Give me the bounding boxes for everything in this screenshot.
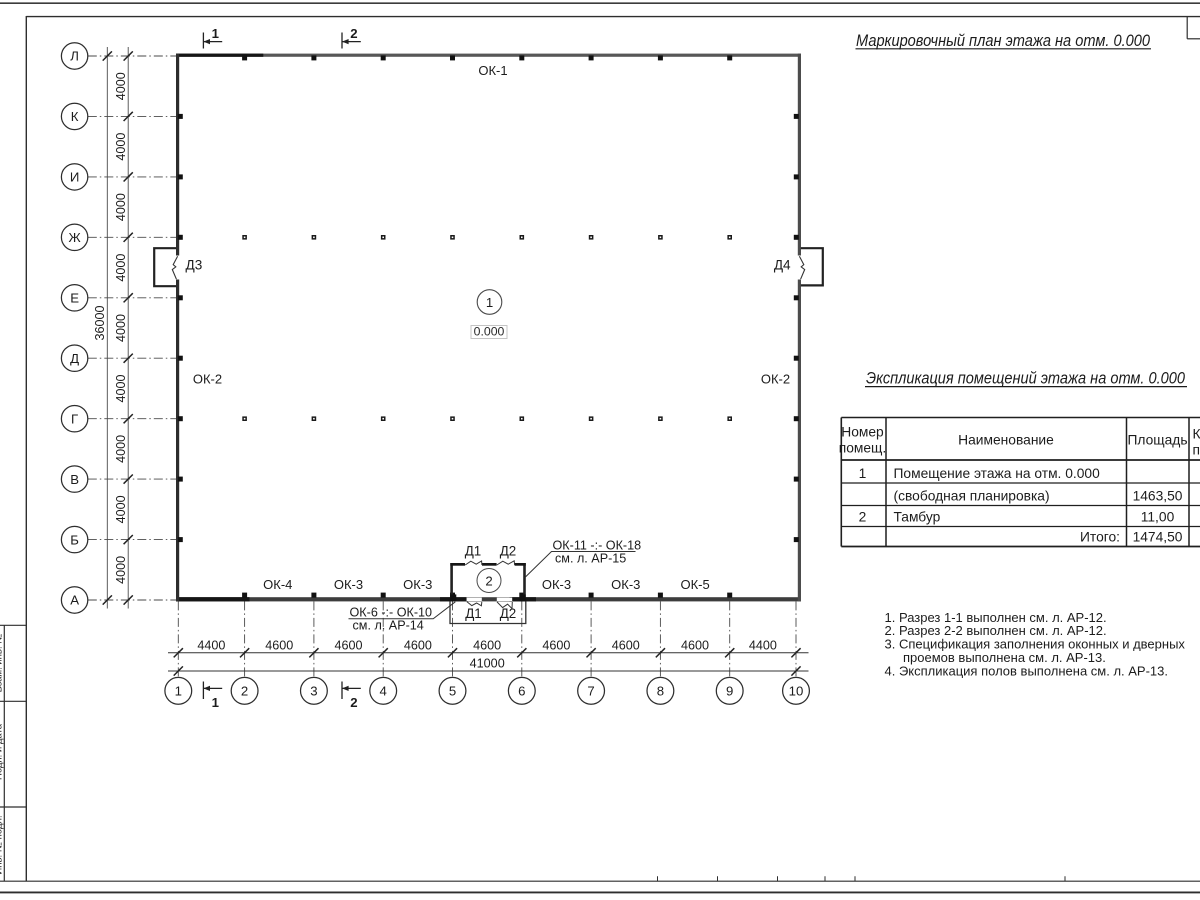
svg-text:2: 2 — [350, 695, 357, 710]
svg-text:по: по — [1193, 443, 1200, 458]
svg-text:Д1: Д1 — [465, 606, 482, 621]
svg-text:(свободная планировка): (свободная планировка) — [894, 489, 1050, 504]
svg-text:1463,50: 1463,50 — [1133, 489, 1183, 504]
svg-text:Е: Е — [70, 291, 79, 306]
svg-text:10: 10 — [789, 684, 804, 699]
svg-text:1474,50: 1474,50 — [1133, 530, 1183, 545]
svg-text:ОК-6 -:- ОК-10: ОК-6 -:- ОК-10 — [350, 605, 433, 619]
svg-text:4000: 4000 — [114, 495, 128, 523]
svg-text:2: 2 — [241, 684, 248, 699]
svg-text:4: 4 — [380, 684, 387, 699]
svg-text:11,00: 11,00 — [1141, 510, 1175, 525]
svg-text:36000: 36000 — [93, 305, 107, 340]
svg-text:ОК-3: ОК-3 — [611, 577, 640, 592]
svg-text:4000: 4000 — [114, 314, 128, 342]
svg-text:1: 1 — [486, 295, 493, 310]
svg-text:4600: 4600 — [265, 638, 293, 652]
svg-text:1: 1 — [212, 26, 219, 41]
svg-text:4400: 4400 — [749, 638, 777, 652]
svg-text:Г: Г — [71, 411, 78, 426]
svg-text:41000: 41000 — [470, 657, 505, 671]
svg-text:Номер: Номер — [841, 425, 884, 440]
svg-text:4000: 4000 — [114, 435, 128, 463]
svg-text:Ка: Ка — [1193, 427, 1200, 442]
svg-text:Подп. и дата: Подп. и дата — [0, 723, 4, 780]
svg-text:2: 2 — [350, 26, 357, 41]
svg-text:Наименование: Наименование — [958, 433, 1054, 448]
svg-text:3: 3 — [310, 684, 317, 699]
svg-text:ОК-1: ОК-1 — [478, 63, 507, 78]
svg-text:4. Экспликация полов выполнена: 4. Экспликация полов выполнена см. л. АР… — [885, 663, 1169, 678]
svg-text:А: А — [70, 593, 79, 608]
svg-text:4400: 4400 — [197, 638, 225, 652]
svg-text:4000: 4000 — [114, 254, 128, 282]
svg-text:ОК-3: ОК-3 — [403, 577, 432, 592]
svg-text:К: К — [71, 109, 79, 124]
svg-text:В: В — [70, 472, 79, 487]
svg-text:Экспликация помещений этажа на: Экспликация помещений этажа на отм. 0.00… — [866, 370, 1185, 388]
svg-text:Помещение этажа на отм. 0.000: Помещение этажа на отм. 0.000 — [894, 466, 1101, 481]
svg-text:Итого:: Итого: — [1080, 530, 1120, 545]
svg-text:4000: 4000 — [114, 133, 128, 161]
svg-text:Взам. инв. №: Взам. инв. № — [0, 634, 4, 693]
svg-text:см. л. АР-14: см. л. АР-14 — [353, 619, 424, 633]
svg-text:4600: 4600 — [681, 638, 709, 652]
svg-text:Д2: Д2 — [500, 543, 517, 558]
svg-text:8: 8 — [657, 684, 664, 699]
svg-text:Д2: Д2 — [500, 606, 517, 621]
svg-text:4000: 4000 — [114, 556, 128, 584]
svg-text:см. л. АР-15: см. л. АР-15 — [555, 551, 626, 565]
svg-text:0.000: 0.000 — [474, 325, 505, 339]
svg-text:Ж: Ж — [69, 230, 81, 245]
svg-text:ОК-5: ОК-5 — [680, 577, 709, 592]
svg-text:Тамбур: Тамбур — [894, 510, 941, 525]
svg-text:4600: 4600 — [335, 638, 363, 652]
svg-text:4600: 4600 — [404, 638, 432, 652]
svg-text:4000: 4000 — [114, 72, 128, 100]
svg-text:4600: 4600 — [542, 638, 570, 652]
svg-text:4000: 4000 — [114, 193, 128, 221]
svg-text:1: 1 — [175, 684, 182, 699]
svg-text:4000: 4000 — [114, 374, 128, 402]
svg-text:ОК-3: ОК-3 — [542, 577, 571, 592]
svg-text:Д1: Д1 — [465, 543, 482, 558]
svg-text:6: 6 — [518, 684, 525, 699]
svg-text:Инв. № подл.: Инв. № подл. — [0, 815, 4, 874]
svg-text:9: 9 — [726, 684, 733, 699]
svg-text:4600: 4600 — [612, 638, 640, 652]
svg-text:4600: 4600 — [473, 638, 501, 652]
svg-text:ОК-11 -:- ОК-18: ОК-11 -:- ОК-18 — [553, 538, 642, 552]
svg-text:ОК-4: ОК-4 — [263, 577, 292, 592]
svg-text:5: 5 — [449, 684, 456, 699]
svg-text:Д4: Д4 — [774, 258, 791, 273]
svg-text:1: 1 — [859, 466, 867, 481]
svg-text:ОК-2: ОК-2 — [761, 372, 790, 387]
svg-text:Д3: Д3 — [186, 258, 203, 273]
svg-text:Маркировочный план этажа на от: Маркировочный план этажа на отм. 0.000 — [856, 32, 1150, 50]
svg-text:И: И — [70, 170, 79, 185]
svg-text:2: 2 — [485, 573, 492, 588]
svg-text:Л: Л — [70, 49, 79, 64]
svg-text:2: 2 — [859, 510, 867, 525]
svg-text:ОК-3: ОК-3 — [334, 577, 363, 592]
svg-text:помещ.: помещ. — [839, 441, 887, 456]
svg-text:Площадь: Площадь — [1127, 433, 1187, 448]
svg-text:7: 7 — [587, 684, 594, 699]
svg-text:ОК-2: ОК-2 — [193, 372, 222, 387]
svg-text:Д: Д — [70, 351, 79, 366]
svg-text:Б: Б — [70, 532, 79, 547]
svg-text:1: 1 — [212, 695, 219, 710]
